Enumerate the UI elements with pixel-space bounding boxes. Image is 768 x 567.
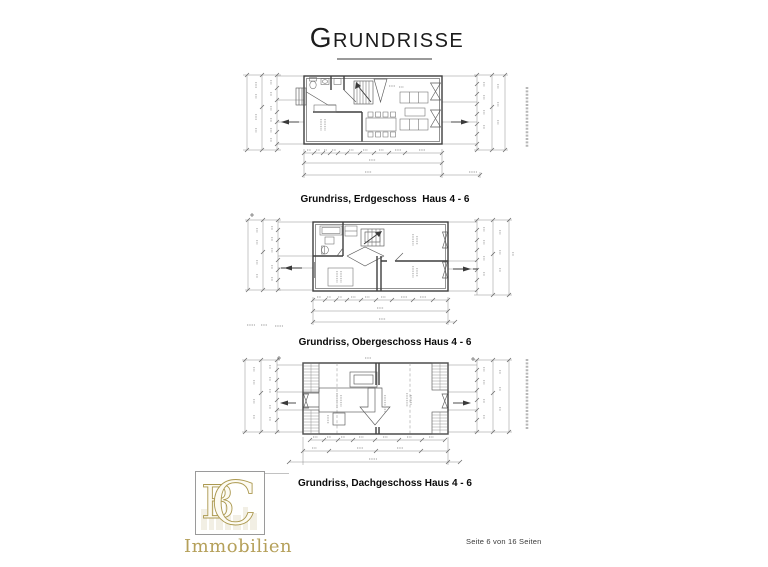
caption-obergeschoss: Grundriss, Obergeschoss Haus 4 - 6 (230, 337, 540, 348)
section-arrow-left-icon (280, 401, 296, 406)
hall-angled-walls (347, 247, 384, 266)
dimension-chain-left (245, 213, 313, 292)
dimension-chain-bottom (302, 149, 482, 178)
caption-dachgeschoss: Grundriss, Dachgeschoss Haus 4 - 6 (230, 478, 540, 489)
monogram-letter-c: C (211, 472, 257, 532)
page-title: Grundrisse (237, 22, 537, 54)
section-arrow-right-icon (451, 120, 469, 125)
logo-monogram: B C (196, 472, 262, 532)
stair-direction-triangle (374, 79, 387, 102)
document-page: Grundrisse (0, 0, 768, 567)
section-arrow-right-icon (453, 267, 478, 272)
dachgeschoss-plan-body (303, 363, 448, 434)
closet (345, 226, 357, 236)
room-labels-blur (413, 234, 417, 278)
dimension-chain-right (442, 73, 508, 152)
section-arrow-right-icon (453, 401, 471, 406)
window-symbol (443, 262, 448, 278)
closet-top (350, 372, 377, 387)
dimension-chain-bottom (287, 358, 462, 465)
dimension-chain-right (448, 357, 512, 434)
bathroom (313, 222, 343, 256)
floor-plan-obergeschoss-drawing (237, 210, 547, 334)
page-number: Seite 6 von 16 Seiten (466, 537, 542, 546)
section-arrow-left-icon (281, 266, 302, 271)
small-room (328, 413, 345, 425)
wc-fixtures (310, 78, 342, 89)
staircase (361, 229, 384, 246)
door-swing (395, 253, 403, 261)
dining-table-and-chairs (366, 112, 396, 137)
window-symbol (442, 394, 448, 408)
dimension-chain-right (448, 218, 513, 297)
section-arrow-left-icon (281, 120, 299, 125)
stair-core-wall (377, 256, 381, 291)
company-name: Immobilien (184, 536, 284, 557)
title-underline (337, 58, 432, 60)
floor-plan-erdgeschoss-drawing (237, 62, 547, 183)
left-room (303, 388, 375, 412)
sofa-group (400, 92, 428, 130)
dimension-chain-bottom (247, 297, 457, 326)
dimension-chain-left (243, 73, 304, 152)
window-symbol (443, 232, 448, 248)
staircase (354, 81, 373, 104)
floor-plan-dachgeschoss-drawing (237, 355, 547, 467)
window-symbol (431, 83, 441, 100)
company-logo: B C (195, 471, 265, 535)
window-symbol (304, 394, 309, 408)
obergeschoss-plan-body (313, 222, 448, 291)
right-room-label-blur (407, 393, 411, 407)
kitchen (313, 105, 362, 142)
dimension-chain-left (242, 356, 303, 434)
bedroom-furniture (328, 268, 353, 286)
erdgeschoss-plan-body (296, 76, 442, 144)
caption-erdgeschoss: Grundriss, Erdgeschoss Haus 4 - 6 (230, 194, 540, 205)
logo-accent-line (265, 473, 289, 474)
window-symbol (431, 110, 441, 127)
